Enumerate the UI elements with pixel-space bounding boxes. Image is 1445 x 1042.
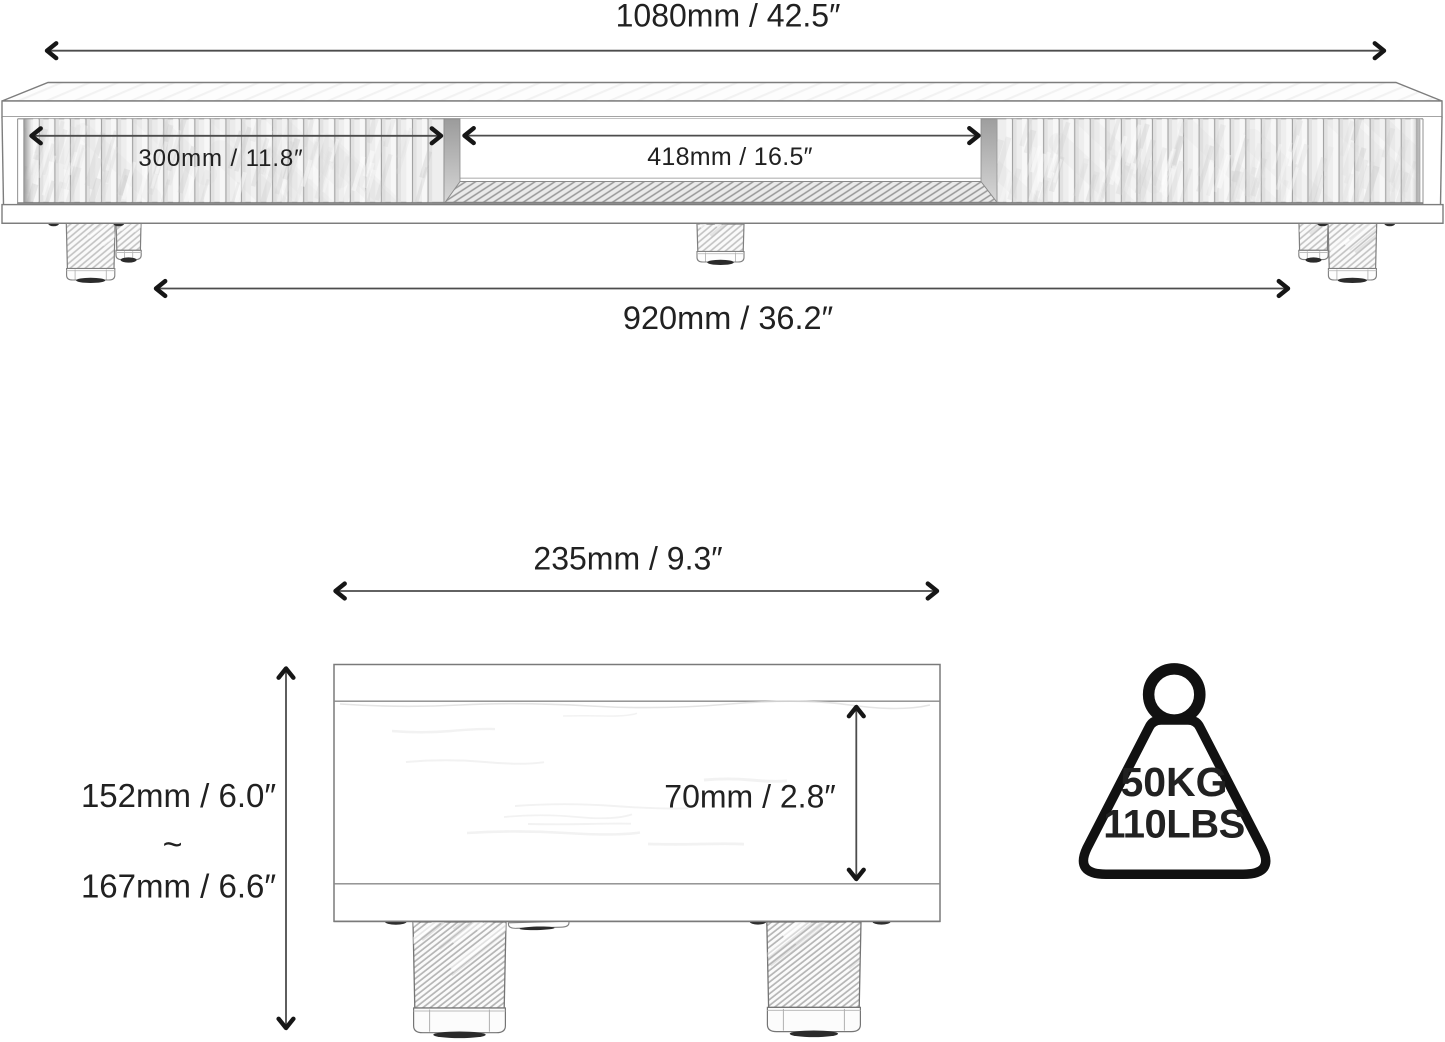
svg-text:167mm / 6.6″: 167mm / 6.6″ — [81, 868, 276, 905]
svg-text:110LBS: 110LBS — [1103, 803, 1245, 847]
svg-text:300mm / 11.8″: 300mm / 11.8″ — [138, 145, 303, 172]
svg-text:418mm / 16.5″: 418mm / 16.5″ — [647, 143, 813, 171]
svg-text:235mm / 9.3″: 235mm / 9.3″ — [533, 541, 722, 577]
svg-text:~: ~ — [163, 826, 183, 864]
svg-text:152mm / 6.0″: 152mm / 6.0″ — [81, 777, 276, 814]
svg-text:50KG: 50KG — [1120, 759, 1227, 805]
svg-text:70mm / 2.8″: 70mm / 2.8″ — [664, 779, 835, 815]
svg-text:920mm / 36.2″: 920mm / 36.2″ — [623, 300, 833, 336]
svg-text:1080mm / 42.5″: 1080mm / 42.5″ — [616, 0, 841, 34]
